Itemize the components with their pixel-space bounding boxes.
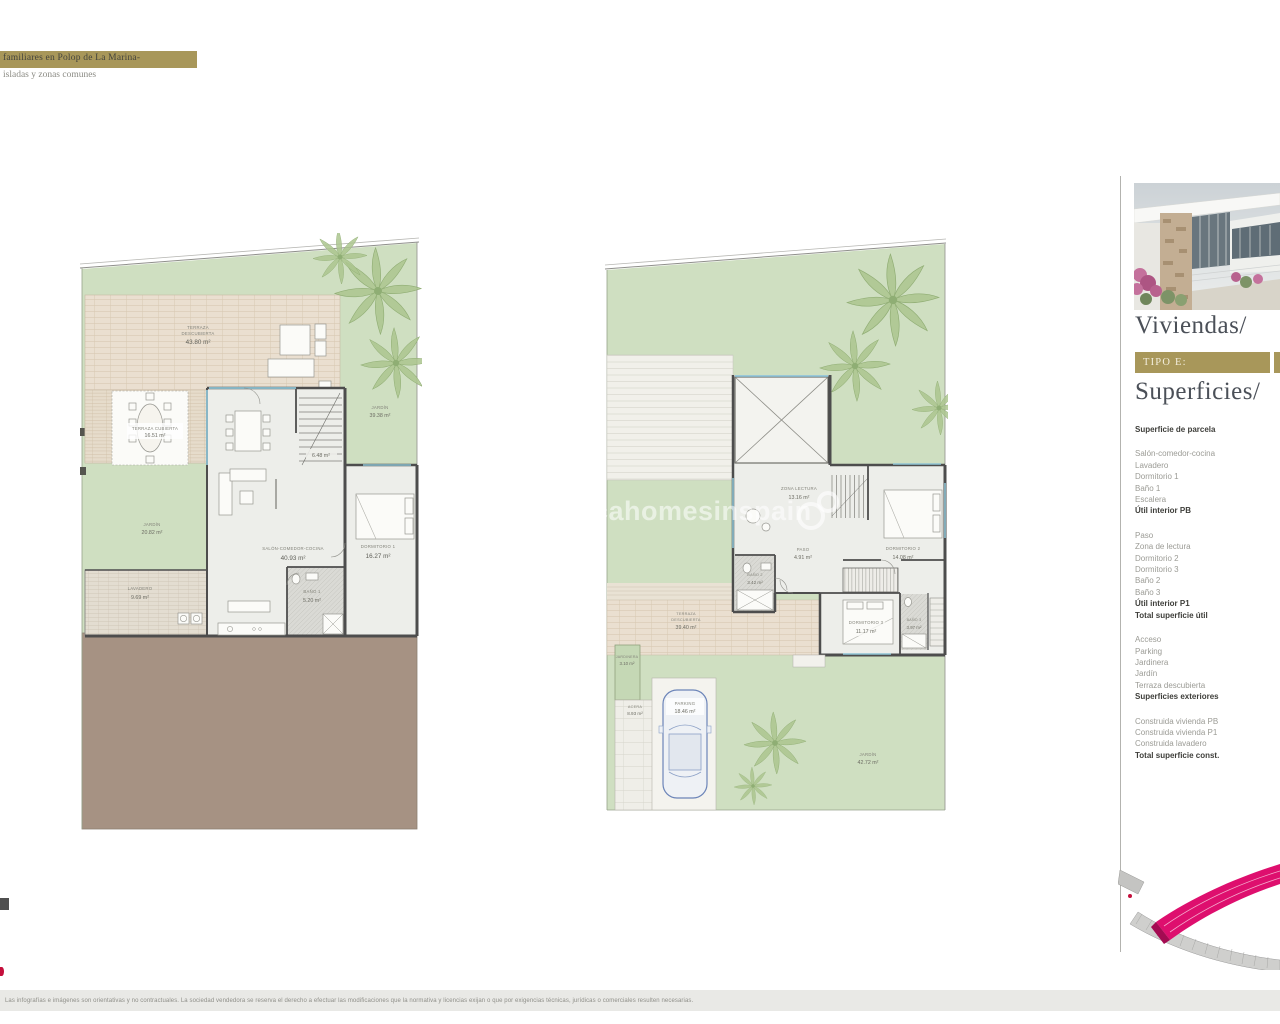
room-label: DORMITORIO 3 [849, 620, 884, 625]
list-item: Dormitorio 3 [1135, 564, 1280, 575]
room-area: 42.72 m² [858, 760, 879, 766]
list-item: Baño 3 [1135, 587, 1280, 598]
roof-below-area [607, 355, 733, 480]
list-item: Jardinera [1135, 657, 1280, 668]
room-label: TERRAZA CUBIERTA [132, 426, 178, 431]
sidebar-divider [1120, 176, 1121, 952]
type-badge: TIPO E: [1135, 352, 1270, 373]
villa-photo [1134, 183, 1280, 310]
list-item: Lavadero [1135, 460, 1280, 471]
list-item: Acceso [1135, 634, 1280, 645]
room-area: 43.80 m² [186, 339, 211, 346]
room-label: PARKING [675, 701, 696, 706]
room-label: PASO [797, 547, 810, 552]
room-area: 9.69 m² [131, 595, 149, 601]
patio-step [793, 655, 825, 667]
watermark-logo-icon [791, 488, 847, 534]
room-label: LAVADERO [128, 586, 153, 591]
list-item: Escalera [1135, 494, 1280, 505]
list-item: Parking [1135, 646, 1280, 657]
list-item: Paso [1135, 530, 1280, 541]
legal-disclaimer: Las infografías e imágenes son orientati… [5, 998, 693, 1004]
room-area: 5.20 m² [303, 598, 321, 604]
bed-icon [884, 490, 942, 538]
room-label: DORMITORIO 2 [886, 546, 921, 551]
list-item: Baño 1 [1135, 483, 1280, 494]
list-item: Construida lavadero [1135, 738, 1280, 749]
list-item: Construida vivienda PB [1135, 716, 1280, 727]
bedroom1-area [345, 465, 417, 636]
list-item: Terraza descubierta [1135, 680, 1280, 691]
list-item: Salón-comedor-cocina [1135, 448, 1280, 459]
laundry-area [85, 570, 207, 636]
list-item: Superficie de parcela [1135, 424, 1280, 435]
room-area: 39.40 m² [676, 625, 697, 631]
room-label: DORMITORIO 1 [361, 544, 396, 549]
masterplan-graphic [1118, 852, 1280, 970]
dining-table-icon [226, 411, 270, 451]
room-area: 39.38 m² [370, 413, 391, 419]
list-item: Zona de lectura [1135, 541, 1280, 552]
brand-red-mark [0, 967, 4, 976]
type-badge-sliver [1274, 352, 1280, 373]
room-area: 3.42 m² [747, 580, 763, 585]
list-item: Baño 2 [1135, 575, 1280, 586]
brochure-page: familiares en Polop de La Marina- islada… [0, 0, 1280, 1024]
room-area: 20.82 m² [142, 530, 163, 536]
room-area: 3.97 m² [907, 625, 922, 630]
deck-steps [607, 583, 740, 600]
room-label: JARDÍN [371, 405, 388, 410]
room-area: 14.08 m² [893, 555, 914, 561]
room-label: DESCUBIERTA [671, 618, 701, 622]
surface-list: Superficie de parcela Salón-comedor-coci… [1135, 424, 1280, 761]
floor-plan-ground: TERRAZA CUBIERTA 16.51 m² LAVADERO 9.69 … [78, 233, 422, 833]
room-label: JARDÍN [859, 752, 876, 757]
room-label: DESCUBIERTA [182, 331, 215, 336]
sidebar-title: Viviendas/ [1135, 312, 1247, 340]
planter-area [615, 645, 640, 700]
watermark-text: ncahomesinspain [576, 496, 812, 527]
void-double-height [735, 377, 828, 463]
list-item: Jardín [1135, 668, 1280, 679]
project-title-line2: isladas y zonas comunes [3, 70, 96, 80]
list-item: Dormitorio 2 [1135, 553, 1280, 564]
list-item: Superficies exteriores [1135, 691, 1280, 702]
room-label: TERRAZA [676, 612, 696, 616]
list-item: Total superficie útil [1135, 610, 1280, 621]
room-area: 40.93 m² [281, 555, 306, 562]
stairs-area: 6.48 m² [312, 453, 330, 459]
room-area: 18.46 m² [675, 709, 696, 715]
sidewalk-area [615, 700, 655, 810]
room-area: 4.91 m² [794, 555, 812, 561]
room-label: BAÑO 3 [907, 617, 922, 622]
ground-area [82, 633, 417, 829]
room-area: 8.93 m² [627, 711, 643, 716]
room-label: BAÑO 2 [747, 572, 762, 577]
list-item: Útil interior P1 [1135, 598, 1280, 609]
brand-square-mark [0, 898, 9, 910]
room-label: BAÑO 1 [303, 589, 321, 594]
room-area: 16.51 m² [145, 433, 166, 439]
room-label: JARDÍN [143, 522, 160, 527]
sidebar-subtitle: Superficies/ [1135, 378, 1260, 406]
list-item: Dormitorio 1 [1135, 471, 1280, 482]
bed-icon [356, 494, 414, 539]
room-label: TERRAZA [187, 325, 209, 330]
room-label: SALÓN-COMEDOR-COCINA [262, 546, 324, 551]
room-area: 3.10 m² [620, 661, 635, 666]
floor-plan-first: PARKING 18.46 m² JARDINERA 3.10 m² ACERA… [603, 238, 948, 818]
list-item: Total superficie const. [1135, 750, 1280, 761]
room-area: 16.27 m² [366, 553, 391, 560]
room-area: 11.17 m² [856, 629, 877, 635]
list-item: Construida vivienda P1 [1135, 727, 1280, 738]
list-item: Útil interior PB [1135, 505, 1280, 516]
room-label: ACERA [628, 705, 643, 709]
room-label: JARDINERA [616, 655, 639, 659]
wardrobe-icon [843, 568, 898, 592]
project-title-line1: familiares en Polop de La Marina- [3, 53, 140, 63]
